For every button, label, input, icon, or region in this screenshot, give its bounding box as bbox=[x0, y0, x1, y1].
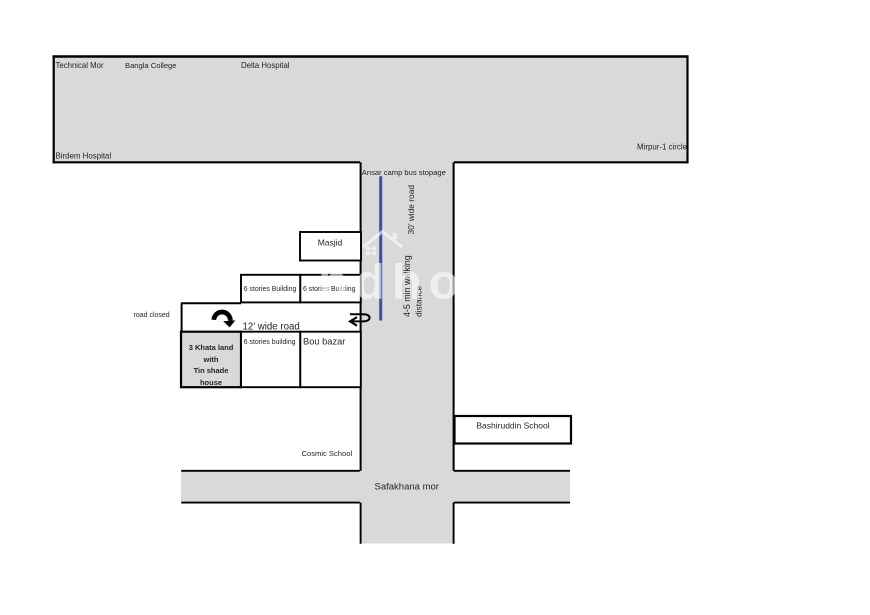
svg-text:Delta Hospital: Delta Hospital bbox=[241, 61, 290, 70]
svg-text:Tin shade: Tin shade bbox=[194, 366, 229, 375]
svg-text:house: house bbox=[200, 378, 222, 387]
svg-text:Masjid: Masjid bbox=[318, 238, 343, 248]
svg-text:Bou bazar: Bou bazar bbox=[303, 337, 345, 347]
svg-text:Ansar camp bus stopage: Ansar camp bus stopage bbox=[362, 168, 446, 177]
svg-text:Mirpur-1 circle: Mirpur-1 circle bbox=[637, 143, 688, 152]
svg-text:30’ wide road: 30’ wide road bbox=[406, 185, 416, 235]
svg-text:Cosmic School: Cosmic School bbox=[302, 449, 353, 458]
svg-text:Safakhana mor: Safakhana mor bbox=[375, 481, 439, 492]
svg-text:Technical Mor: Technical Mor bbox=[56, 61, 105, 70]
svg-text:3 Khata land: 3 Khata land bbox=[189, 343, 234, 352]
svg-text:6 stories Building: 6 stories Building bbox=[244, 286, 297, 293]
svg-text:bdho: bdho bbox=[318, 256, 466, 310]
svg-text:Bashiruddin School: Bashiruddin School bbox=[476, 420, 549, 430]
svg-text:Bangla College: Bangla College bbox=[125, 61, 177, 70]
svg-text:with: with bbox=[203, 355, 219, 364]
svg-text:Birdem Hospital: Birdem Hospital bbox=[56, 152, 112, 161]
svg-text:6 stories building: 6 stories building bbox=[244, 339, 296, 346]
svg-text:road closed: road closed bbox=[134, 312, 170, 319]
